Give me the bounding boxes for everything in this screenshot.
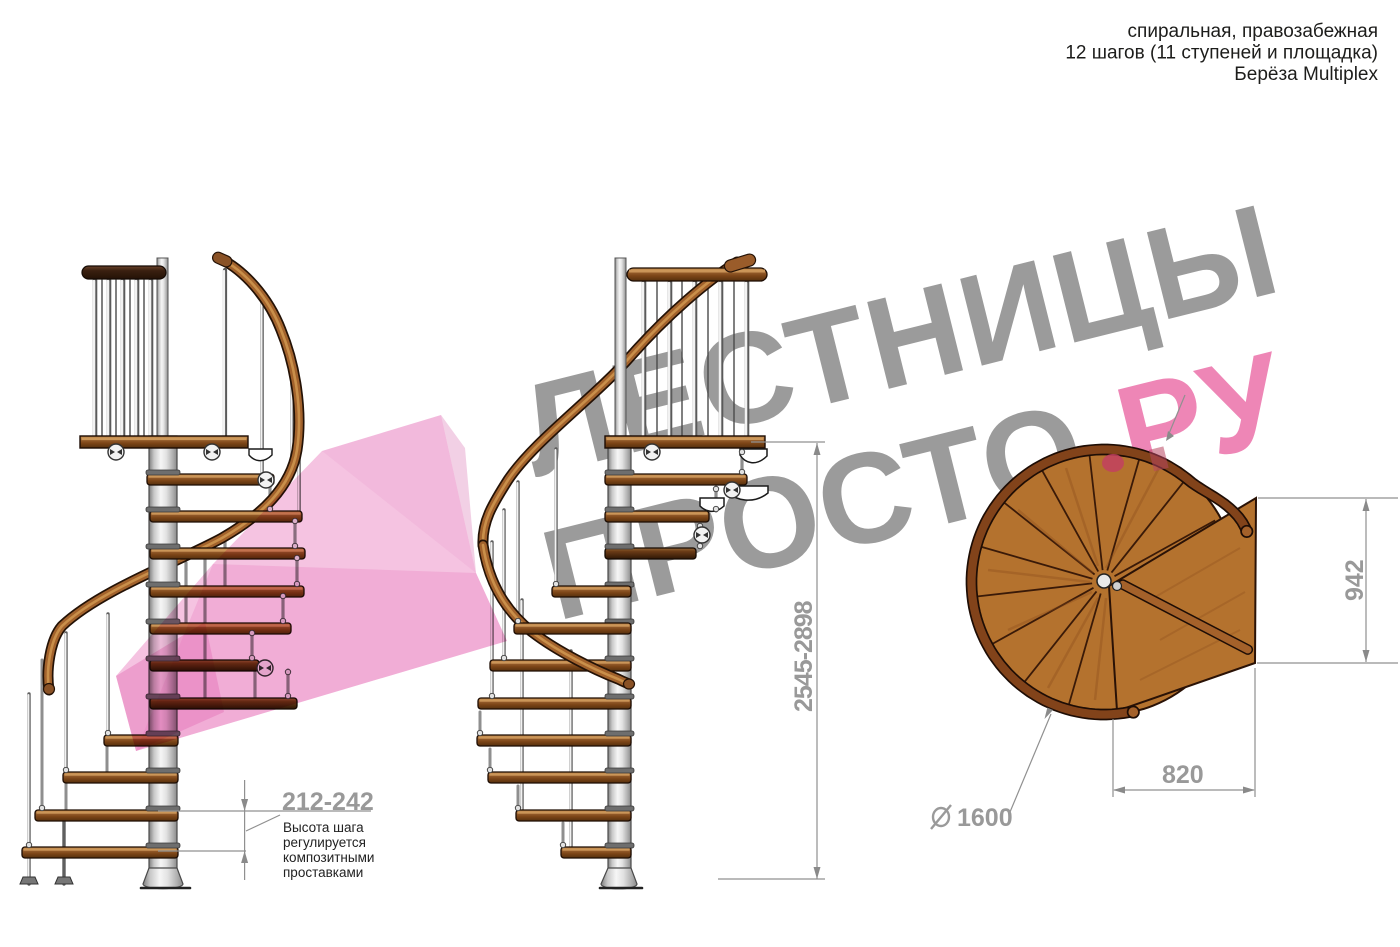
svg-text:Высота шага: Высота шага (283, 820, 364, 835)
svg-text:942: 942 (1341, 559, 1369, 601)
svg-text:1600: 1600 (957, 804, 1013, 832)
svg-text:2545-2898: 2545-2898 (790, 600, 818, 712)
svg-text:212-242: 212-242 (282, 788, 374, 816)
svg-text:12 шагов (11 ступеней и площад: 12 шагов (11 ступеней и площадка) (1065, 43, 1378, 64)
svg-text:регулируется: регулируется (283, 835, 366, 850)
svg-text:820: 820 (1162, 761, 1204, 789)
svg-text:спиральная, правозабежная: спиральная, правозабежная (1128, 21, 1378, 42)
svg-text:композитными: композитными (283, 850, 374, 865)
svg-text:Берёза Multiplex: Берёза Multiplex (1234, 64, 1378, 85)
svg-text:проставками: проставками (283, 865, 363, 880)
